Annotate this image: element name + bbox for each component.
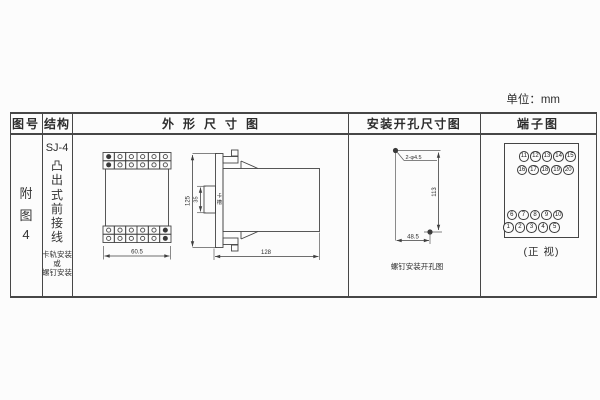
mounting-holes-drawing: 2-φ4.5 113 48.5 xyxy=(393,148,442,244)
terminal-circle: 13 xyxy=(542,151,553,162)
terminal-circle: 2 xyxy=(515,222,526,233)
mounting-caption: 螺钉安装开孔图 xyxy=(380,261,454,272)
terminal-row: 1617181920 xyxy=(517,165,574,176)
terminal-caption: (正 视) xyxy=(504,244,579,259)
hole-diameter-label: 2-φ4.5 xyxy=(406,155,422,161)
front-width-dim: 60.5 xyxy=(131,250,143,256)
terminal-circle: 6 xyxy=(507,210,518,221)
terminal-circle: 15 xyxy=(565,151,576,162)
terminal-circle: 20 xyxy=(563,165,574,176)
terminal-circle: 11 xyxy=(519,151,530,162)
terminal-circle: 3 xyxy=(526,222,537,233)
rail-slot-label-char: 槽 xyxy=(217,198,222,206)
terminal-circle: 16 xyxy=(517,165,528,176)
terminal-circle: 9 xyxy=(541,210,552,221)
mounting-vertical-dim: 113 xyxy=(432,187,438,197)
rail-slot-label-char: 卡 xyxy=(217,192,222,200)
terminal-circle: 8 xyxy=(530,210,541,221)
terminal-circle: 4 xyxy=(538,222,549,233)
terminal-circle: 5 xyxy=(549,222,560,233)
drawing-sheet: 单位：mm 图号 结构 外形尺寸图 安装开孔尺寸图 端子图 附 图 4 SJ-4… xyxy=(0,0,600,400)
front-view-drawing: 60.5 xyxy=(103,153,171,260)
terminal-circle: 10 xyxy=(553,210,564,221)
terminal-circle: 12 xyxy=(530,151,541,162)
mounting-horizontal-dim: 48.5 xyxy=(407,235,419,241)
side-depth-dim: 128 xyxy=(261,250,272,256)
terminal-circle: 17 xyxy=(528,165,539,176)
side-height-dim: 125 xyxy=(186,195,192,206)
terminal-row: 12345 xyxy=(503,222,560,233)
terminal-circle: 7 xyxy=(518,210,529,221)
terminal-row: 678910 xyxy=(507,210,564,221)
terminal-circle: 1 xyxy=(503,222,514,233)
side-view-drawing: 125 35 卡 槽 128 xyxy=(186,150,320,260)
terminal-row: 1112131415 xyxy=(519,151,576,162)
terminal-circle: 19 xyxy=(551,165,562,176)
terminal-circle: 18 xyxy=(540,165,551,176)
terminal-circle: 14 xyxy=(553,151,564,162)
side-notch-dim: 35 xyxy=(194,196,200,202)
